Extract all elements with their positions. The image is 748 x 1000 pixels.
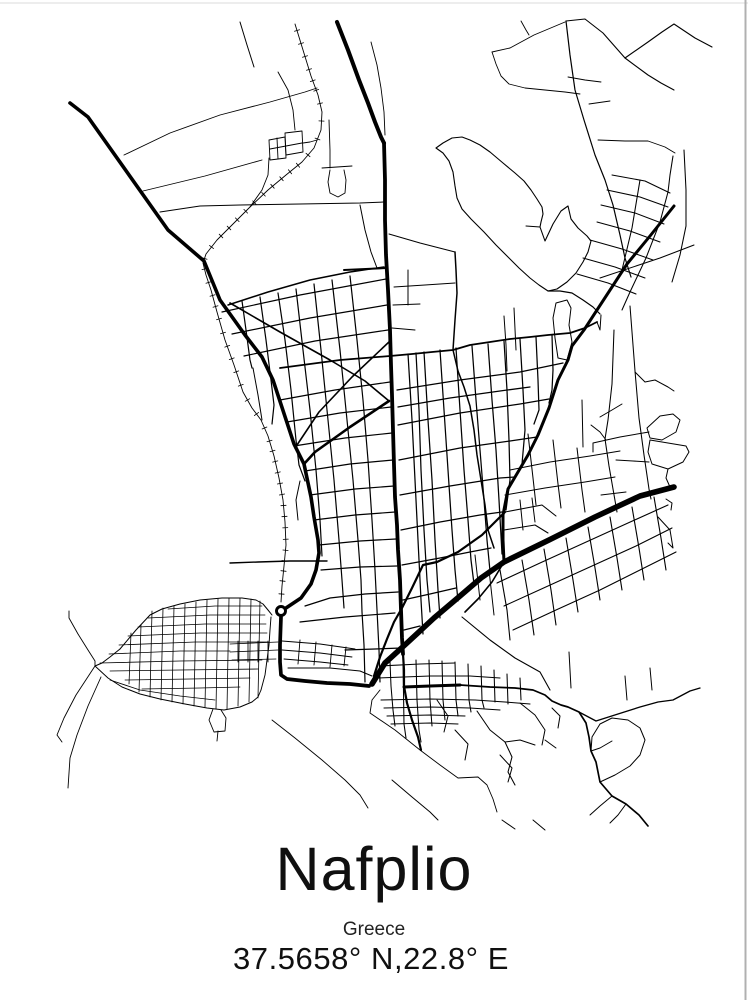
svg-text:37.5658° N,22.8° E: 37.5658° N,22.8° E [233, 941, 509, 976]
svg-text:Nafplio: Nafplio [276, 835, 473, 903]
svg-text:Greece: Greece [343, 919, 405, 940]
